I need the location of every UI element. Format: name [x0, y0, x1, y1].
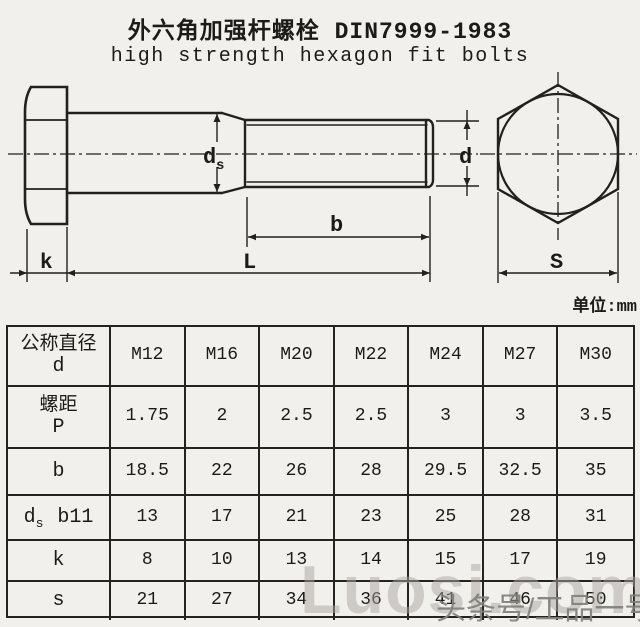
spec-value-cell: 15 — [409, 541, 484, 582]
dimension-arrowheads — [19, 114, 617, 276]
size-header-cell: M16 — [186, 327, 261, 387]
row-label: b — [8, 449, 111, 496]
row-label-line: 螺距 — [39, 394, 77, 417]
dim-label-ds-sub: s — [216, 158, 224, 174]
dim-label-k: k — [40, 252, 53, 275]
row-label: s — [8, 582, 111, 620]
size-header-cell: M12 — [111, 327, 186, 387]
bolt-technical-drawing: d s d b L k S — [0, 70, 640, 320]
dim-label-d: d — [459, 145, 472, 170]
dim-label-b: b — [330, 213, 343, 238]
size-header-cell: M24 — [409, 327, 484, 387]
spec-value-cell: 28 — [335, 449, 410, 496]
spec-value-cell: 3.5 — [558, 387, 633, 449]
row-label-subscript: s — [36, 516, 44, 531]
size-header-cell: M22 — [335, 327, 410, 387]
spec-value-cell: 46 — [484, 582, 559, 620]
shank-outline — [67, 113, 222, 193]
spec-value-cell: 17 — [186, 496, 261, 541]
page-subtitle: high strength hexagon fit bolts — [0, 45, 640, 68]
row-label-line: 公称直径 — [20, 333, 96, 356]
page-title: 外六角加强杆螺栓 DIN7999-1983 — [0, 11, 640, 45]
spec-value-cell: 8 — [111, 541, 186, 582]
spec-value-cell: 35 — [558, 449, 633, 496]
dimension-lines — [10, 110, 618, 283]
dim-label-l: L — [243, 250, 256, 275]
row-label: k — [8, 541, 111, 582]
dim-label-s: S — [550, 250, 563, 275]
row-label: dsb11 — [8, 496, 111, 541]
spec-value-cell: 2.5 — [260, 387, 335, 449]
din7999-spec-sheet: 外六角加强杆螺栓 DIN7999-1983 high strength hexa… — [0, 0, 640, 627]
size-header-cell: M20 — [260, 327, 335, 387]
spec-value-cell: 2.5 — [335, 387, 410, 449]
spec-value-cell: 25 — [409, 496, 484, 541]
spec-value-cell: 18.5 — [111, 449, 186, 496]
bolt-side-view — [25, 87, 433, 224]
spec-value-cell: 27 — [186, 582, 261, 620]
spec-value-cell: 14 — [335, 541, 410, 582]
spec-value-cell: 50 — [558, 582, 633, 620]
unit-note: 单位:mm — [572, 291, 637, 317]
row-label-main: d — [24, 506, 36, 529]
spec-value-cell: 10 — [186, 541, 261, 582]
hex-head-outline — [25, 87, 67, 224]
row-label: 公称直径d — [8, 327, 111, 387]
dim-label-ds: d — [203, 145, 216, 170]
spec-table: 公称直径dM12M16M20M22M24M27M30螺距P1.7522.52.5… — [6, 325, 635, 618]
spec-value-cell: 22 — [186, 449, 261, 496]
row-label-line: P — [52, 416, 64, 440]
spec-value-cell: 26 — [260, 449, 335, 496]
size-header-cell: M27 — [484, 327, 559, 387]
spec-value-cell: 32.5 — [484, 449, 559, 496]
shank-thread-transition — [222, 113, 245, 193]
spec-value-cell: 2 — [186, 387, 261, 449]
row-label-line: k — [52, 549, 64, 573]
row-label-line: d — [52, 355, 64, 379]
spec-value-cell: 13 — [260, 541, 335, 582]
spec-value-cell: 34 — [260, 582, 335, 620]
size-header-cell: M30 — [558, 327, 633, 387]
spec-value-cell: 3 — [409, 387, 484, 449]
spec-value-cell: 36 — [335, 582, 410, 620]
spec-value-cell: 21 — [260, 496, 335, 541]
spec-value-cell: 28 — [484, 496, 559, 541]
spec-value-cell: 17 — [484, 541, 559, 582]
spec-value-cell: 1.75 — [111, 387, 186, 449]
spec-value-cell: 41 — [409, 582, 484, 620]
row-label-line: s — [52, 589, 64, 613]
spec-value-cell: 23 — [335, 496, 410, 541]
spec-value-cell: 31 — [558, 496, 633, 541]
spec-value-cell: 21 — [111, 582, 186, 620]
spec-value-cell: 19 — [558, 541, 633, 582]
spec-value-cell: 29.5 — [409, 449, 484, 496]
spec-value-cell: 3 — [484, 387, 559, 449]
row-label-line: b — [52, 460, 64, 484]
row-label-suffix: b11 — [57, 506, 93, 529]
row-label: 螺距P — [8, 387, 111, 449]
spec-value-cell: 13 — [111, 496, 186, 541]
